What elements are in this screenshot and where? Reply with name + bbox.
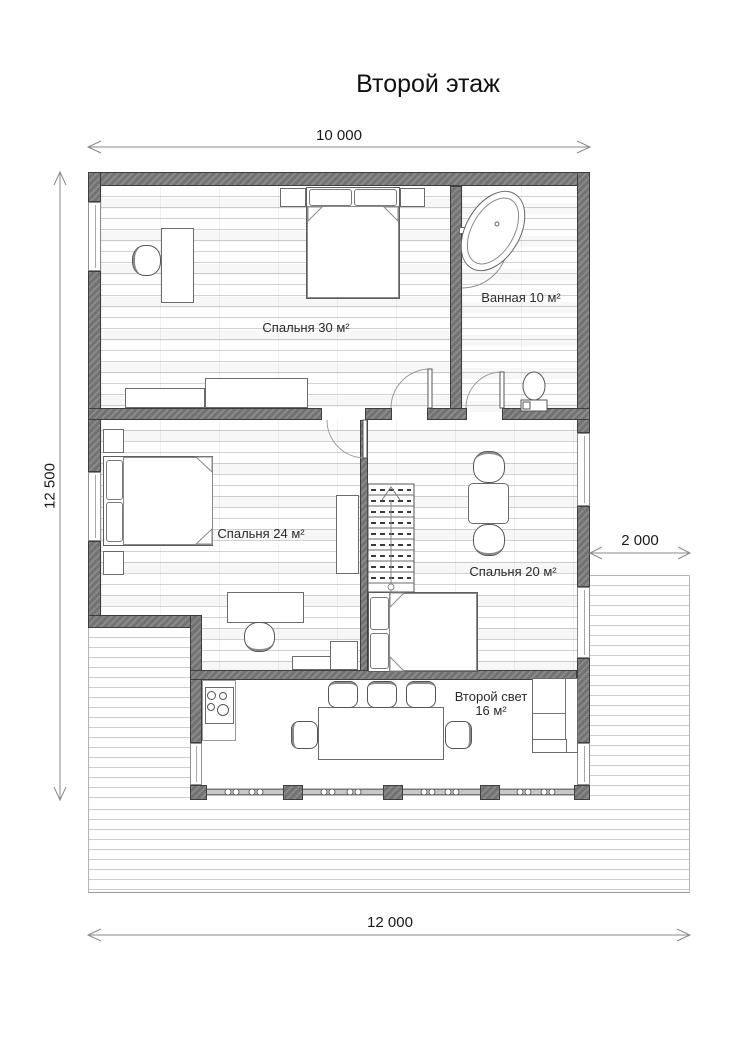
balcony-post-2 — [283, 785, 303, 800]
pillow-bedroom-24-bottom — [106, 502, 123, 542]
room-label-second-light: Второй свет 16 м² — [455, 690, 528, 718]
wall-middle-horizontal-4 — [502, 408, 590, 420]
chair-bedroom-20-top — [473, 451, 505, 483]
wardrobe-bedroom-24 — [336, 495, 359, 574]
bathtub-faucet — [459, 227, 466, 234]
balcony-post-3 — [383, 785, 403, 800]
pillow-bedroom-30-left — [309, 189, 352, 206]
dining-chair-top-1 — [328, 681, 358, 708]
floor-plan-page: Второй этаж — [0, 0, 744, 1051]
window-bedroom-30 — [88, 202, 101, 271]
bed-blanket-bedroom-20 — [389, 593, 477, 671]
deck-left — [88, 628, 190, 800]
dimension-label-right: 2 000 — [621, 532, 659, 549]
cooktop-burner-2 — [219, 692, 227, 700]
pillow-bedroom-20-top — [370, 597, 389, 630]
balcony-post-1 — [190, 785, 207, 800]
room-label-second-light-area: 16 м² — [475, 703, 506, 718]
room-label-second-light-name: Второй свет — [455, 689, 528, 704]
dimension-label-left: 12 500 — [42, 463, 59, 509]
window-bedroom-24 — [88, 472, 101, 541]
room-label-bathroom: Ванная 10 м² — [481, 291, 560, 305]
wall-bathroom-separator — [450, 186, 462, 420]
cooktop-burner-3 — [207, 703, 215, 711]
wall-exterior-right-a — [577, 172, 590, 433]
dining-chair-top-3 — [406, 681, 436, 708]
dresser-bedroom-30-right — [205, 378, 308, 408]
wall-exterior-left-a — [88, 172, 101, 202]
cabinet-bedroom-24 — [330, 641, 358, 670]
pillow-bedroom-30-right — [354, 189, 397, 206]
nightstand-bedroom-24-top — [103, 429, 124, 453]
nightstand-bedroom-24-bottom — [103, 551, 124, 575]
window-second-light-right — [577, 743, 590, 785]
dining-chair-top-2 — [367, 681, 397, 708]
sofa-seat — [532, 739, 567, 753]
chair-bedroom-20-bottom — [473, 524, 505, 556]
cooktop-burner-4 — [217, 704, 229, 716]
wall-exterior-right-c — [577, 658, 590, 743]
nightstand-bedroom-30-left — [280, 188, 306, 207]
pillow-bedroom-24-top — [106, 460, 123, 500]
balcony-post-5 — [574, 785, 590, 800]
deck-right — [590, 575, 690, 800]
wall-exterior-left-b — [88, 271, 101, 472]
desk-bedroom-24 — [227, 592, 304, 623]
room-label-bedroom-30: Спальня 30 м² — [262, 321, 349, 335]
dining-table — [318, 707, 444, 760]
table-bedroom-20 — [468, 483, 509, 524]
wall-exterior-top — [88, 172, 590, 186]
room-label-bedroom-20: Спальня 20 м² — [469, 565, 556, 579]
room-label-bedroom-24: Спальня 24 м² — [217, 527, 304, 541]
window-second-light-left — [190, 743, 202, 785]
sofa-cushion-line-horizontal — [533, 713, 565, 714]
balcony-post-4 — [480, 785, 500, 800]
wall-middle-horizontal-1 — [88, 408, 322, 420]
nightstand-bedroom-30-right — [400, 188, 425, 207]
window-bedroom-20-a — [577, 433, 590, 506]
dimension-label-top: 10 000 — [316, 127, 362, 144]
wall-middle-horizontal-3 — [427, 408, 467, 420]
wall-exterior-right-b — [577, 506, 590, 587]
wall-notch-horizontal — [88, 615, 202, 628]
dresser-bedroom-30-left — [125, 388, 205, 408]
dining-chair-right — [445, 721, 472, 749]
wall-middle-vertical — [360, 420, 368, 672]
wall-middle-horizontal-2 — [365, 408, 392, 420]
dining-chair-left — [291, 721, 318, 749]
pillow-bedroom-20-bottom — [370, 633, 389, 669]
desk-bedroom-30 — [161, 228, 194, 303]
bed-blanket-bedroom-24 — [123, 457, 213, 545]
window-bedroom-20-b — [577, 587, 590, 658]
bed-blanket-bedroom-30 — [307, 206, 399, 298]
cooktop-burner-1 — [207, 691, 216, 700]
plan-title: Второй этаж — [356, 70, 500, 99]
chair-bedroom-24 — [244, 622, 275, 652]
chair-bedroom-30 — [132, 245, 161, 276]
deck-bottom — [88, 800, 690, 893]
dimension-label-bottom: 12 000 — [367, 914, 413, 931]
